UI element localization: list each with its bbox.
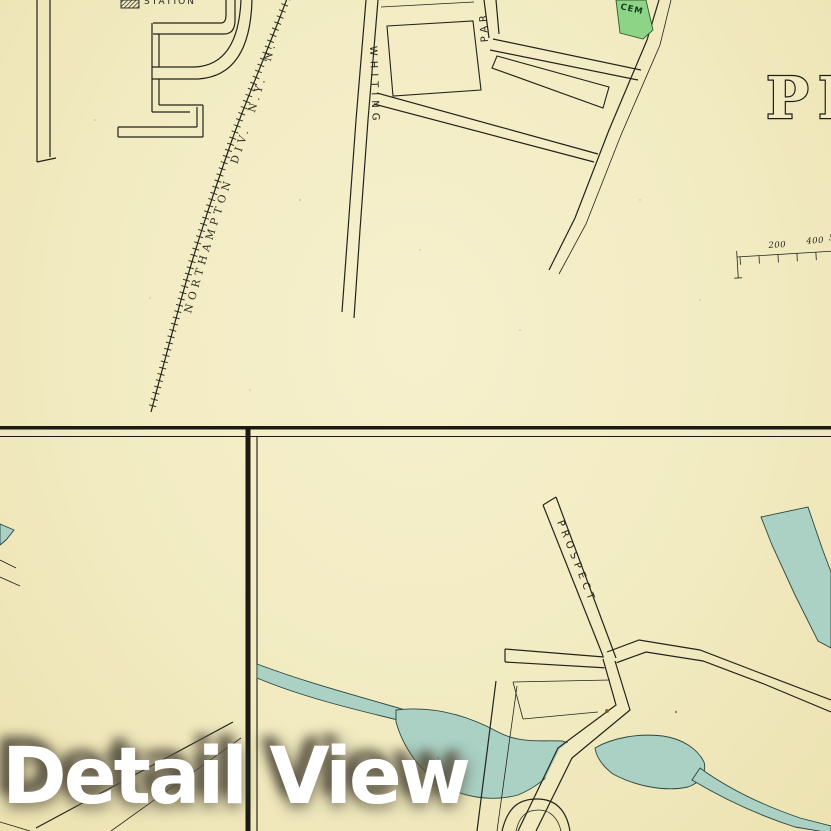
west-road (505, 649, 608, 668)
pond-east-lobe (595, 735, 705, 789)
stream-fragment (0, 524, 14, 545)
detail-view-watermark: Detail View (2, 738, 468, 816)
river-band-northeast (761, 507, 831, 648)
station-building (121, 0, 139, 8)
park-street: PAR (478, 0, 499, 43)
railroad-label: NORTHAMPTON DIV. N.Y. N. (182, 39, 279, 314)
stream-outlet (692, 768, 831, 831)
scale-bar: 200 400 5 (732, 233, 831, 278)
station-label: STATION (144, 0, 196, 7)
street-grid (118, 0, 252, 137)
scale-label-400: 400 (805, 236, 824, 247)
northeast-road (607, 640, 831, 712)
railroad-track: NORTHAMPTON DIV. N.Y. N. (149, 0, 290, 412)
atlas-map-image: STATION NORTHAMPTON DIV. N.Y. N. (0, 0, 831, 831)
prospect-street-label: PROSPECT (554, 519, 597, 605)
cemetery: CEM (616, 0, 653, 39)
top-map-panel: STATION NORTHAMPTON DIV. N.Y. N. (37, 0, 831, 412)
cemetery-road (549, 0, 671, 274)
scale-label-200: 200 (767, 240, 786, 251)
top-border-bar (0, 426, 831, 430)
paper-speckles (94, 119, 701, 391)
park-street-label: PAR (478, 11, 491, 43)
road-left (37, 0, 56, 162)
map-title-partial: PI (766, 65, 831, 132)
village-blocks (374, 2, 641, 162)
svg-text:NORTHAMPTON DIV. N.Y. N.: NORTHAMPTON DIV. N.Y. N. (182, 39, 279, 314)
map-linework: STATION NORTHAMPTON DIV. N.Y. N. (0, 0, 831, 831)
whiting-street: WHITING (342, 0, 381, 318)
